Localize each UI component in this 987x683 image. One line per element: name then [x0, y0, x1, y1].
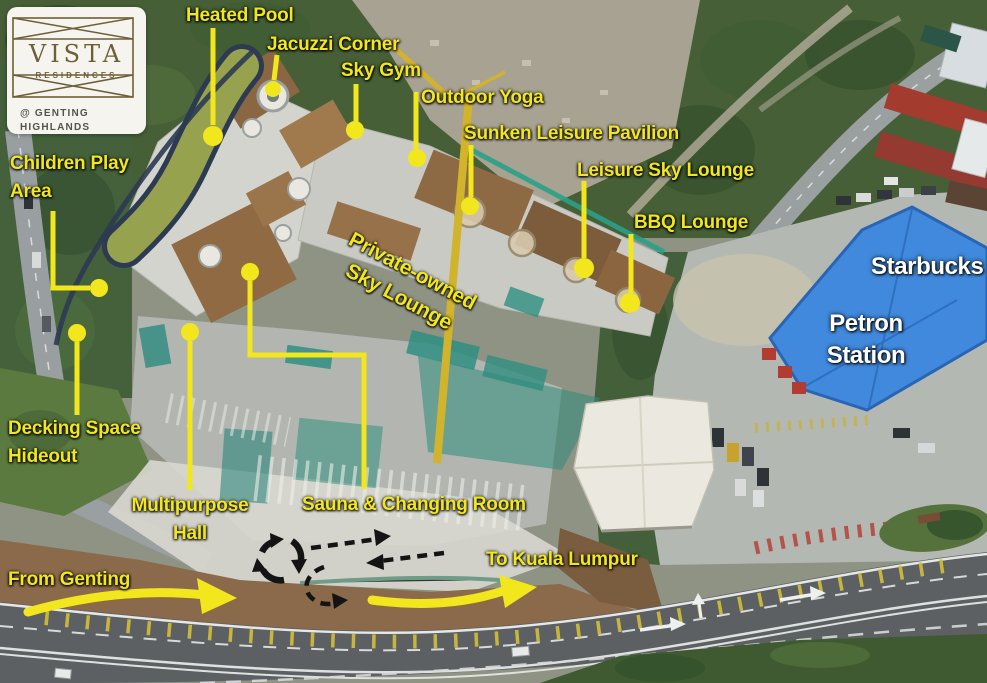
- sky-gym-marker-dot: [346, 121, 364, 139]
- outdoor-yoga-marker-dot: [408, 149, 426, 167]
- label-outdoor-yoga: Outdoor Yoga: [421, 84, 544, 112]
- petron-line1: Petron: [829, 310, 903, 337]
- annotated-aerial-site-map: VISTA RESIDENCES @ GENTING HIGHLANDS Hea…: [0, 0, 987, 683]
- children-play-area-leader-line: [53, 211, 90, 288]
- logo-name: VISTA: [7, 40, 146, 68]
- petron-line2: Station: [827, 342, 906, 369]
- jacuzzi-corner-marker-dot: [265, 81, 281, 97]
- logo-location-line1: @ GENTING: [20, 108, 89, 119]
- label-from-genting: From Genting: [8, 566, 130, 594]
- decking-line1: Decking Space: [8, 418, 141, 439]
- logo-location-line2: HIGHLANDS: [20, 122, 90, 133]
- decking-line2: Hideout: [8, 446, 77, 467]
- roundabout-arrows: [252, 533, 307, 580]
- multipurpose-line1: Multipurpose: [132, 495, 249, 516]
- sunken-leisure-pavilion-marker-dot: [461, 197, 479, 215]
- to-kuala-lumpur-arrow: [372, 575, 537, 608]
- children-play-line1: Children Play: [10, 153, 129, 174]
- multipurpose-hall-marker-dot: [181, 323, 199, 341]
- label-sky-gym: Sky Gym: [341, 57, 421, 85]
- label-multipurpose-hall: Multipurpose Hall: [122, 492, 258, 547]
- label-heated-pool: Heated Pool: [186, 2, 294, 30]
- logo-type: RESIDENCES: [7, 71, 146, 80]
- children-play-line2: Area: [10, 181, 51, 202]
- sauna-leader-line: [250, 281, 364, 489]
- vista-logo-card: VISTA RESIDENCES @ GENTING HIGHLANDS: [7, 7, 146, 134]
- label-leisure-sky-lounge: Leisure Sky Lounge: [577, 157, 754, 185]
- dashed-arrow-right: [311, 539, 378, 548]
- dashed-route-arrows: [306, 539, 444, 604]
- label-starbucks: Starbucks: [871, 251, 983, 283]
- label-to-kuala-lumpur: To Kuala Lumpur: [486, 546, 638, 574]
- heated-pool-marker-dot: [203, 126, 223, 146]
- sauna-marker-dot: [241, 263, 259, 281]
- label-petron-station: Petron Station: [816, 308, 916, 373]
- label-bbq-lounge: BBQ Lounge: [634, 209, 748, 237]
- logo-location: @ GENTING HIGHLANDS: [20, 107, 90, 134]
- label-sunken-leisure-pavilion: Sunken Leisure Pavilion: [464, 120, 679, 148]
- label-decking-space-hideout: Decking Space Hideout: [8, 415, 141, 470]
- label-sauna-changing-room: Sauna & Changing Room: [302, 491, 526, 519]
- leisure-sky-lounge-marker-dot: [574, 258, 594, 278]
- decking-space-marker-dot: [68, 324, 86, 342]
- bbq-lounge-marker-dot: [620, 293, 640, 313]
- children-play-area-marker-dot: [90, 279, 108, 297]
- multipurpose-line2: Hall: [173, 523, 207, 544]
- dashed-arrow-left: [380, 553, 444, 561]
- jacuzzi-corner-leader-line: [274, 55, 277, 80]
- label-jacuzzi-corner: Jacuzzi Corner: [267, 31, 399, 59]
- label-children-play-area: Children Play Area: [10, 150, 129, 205]
